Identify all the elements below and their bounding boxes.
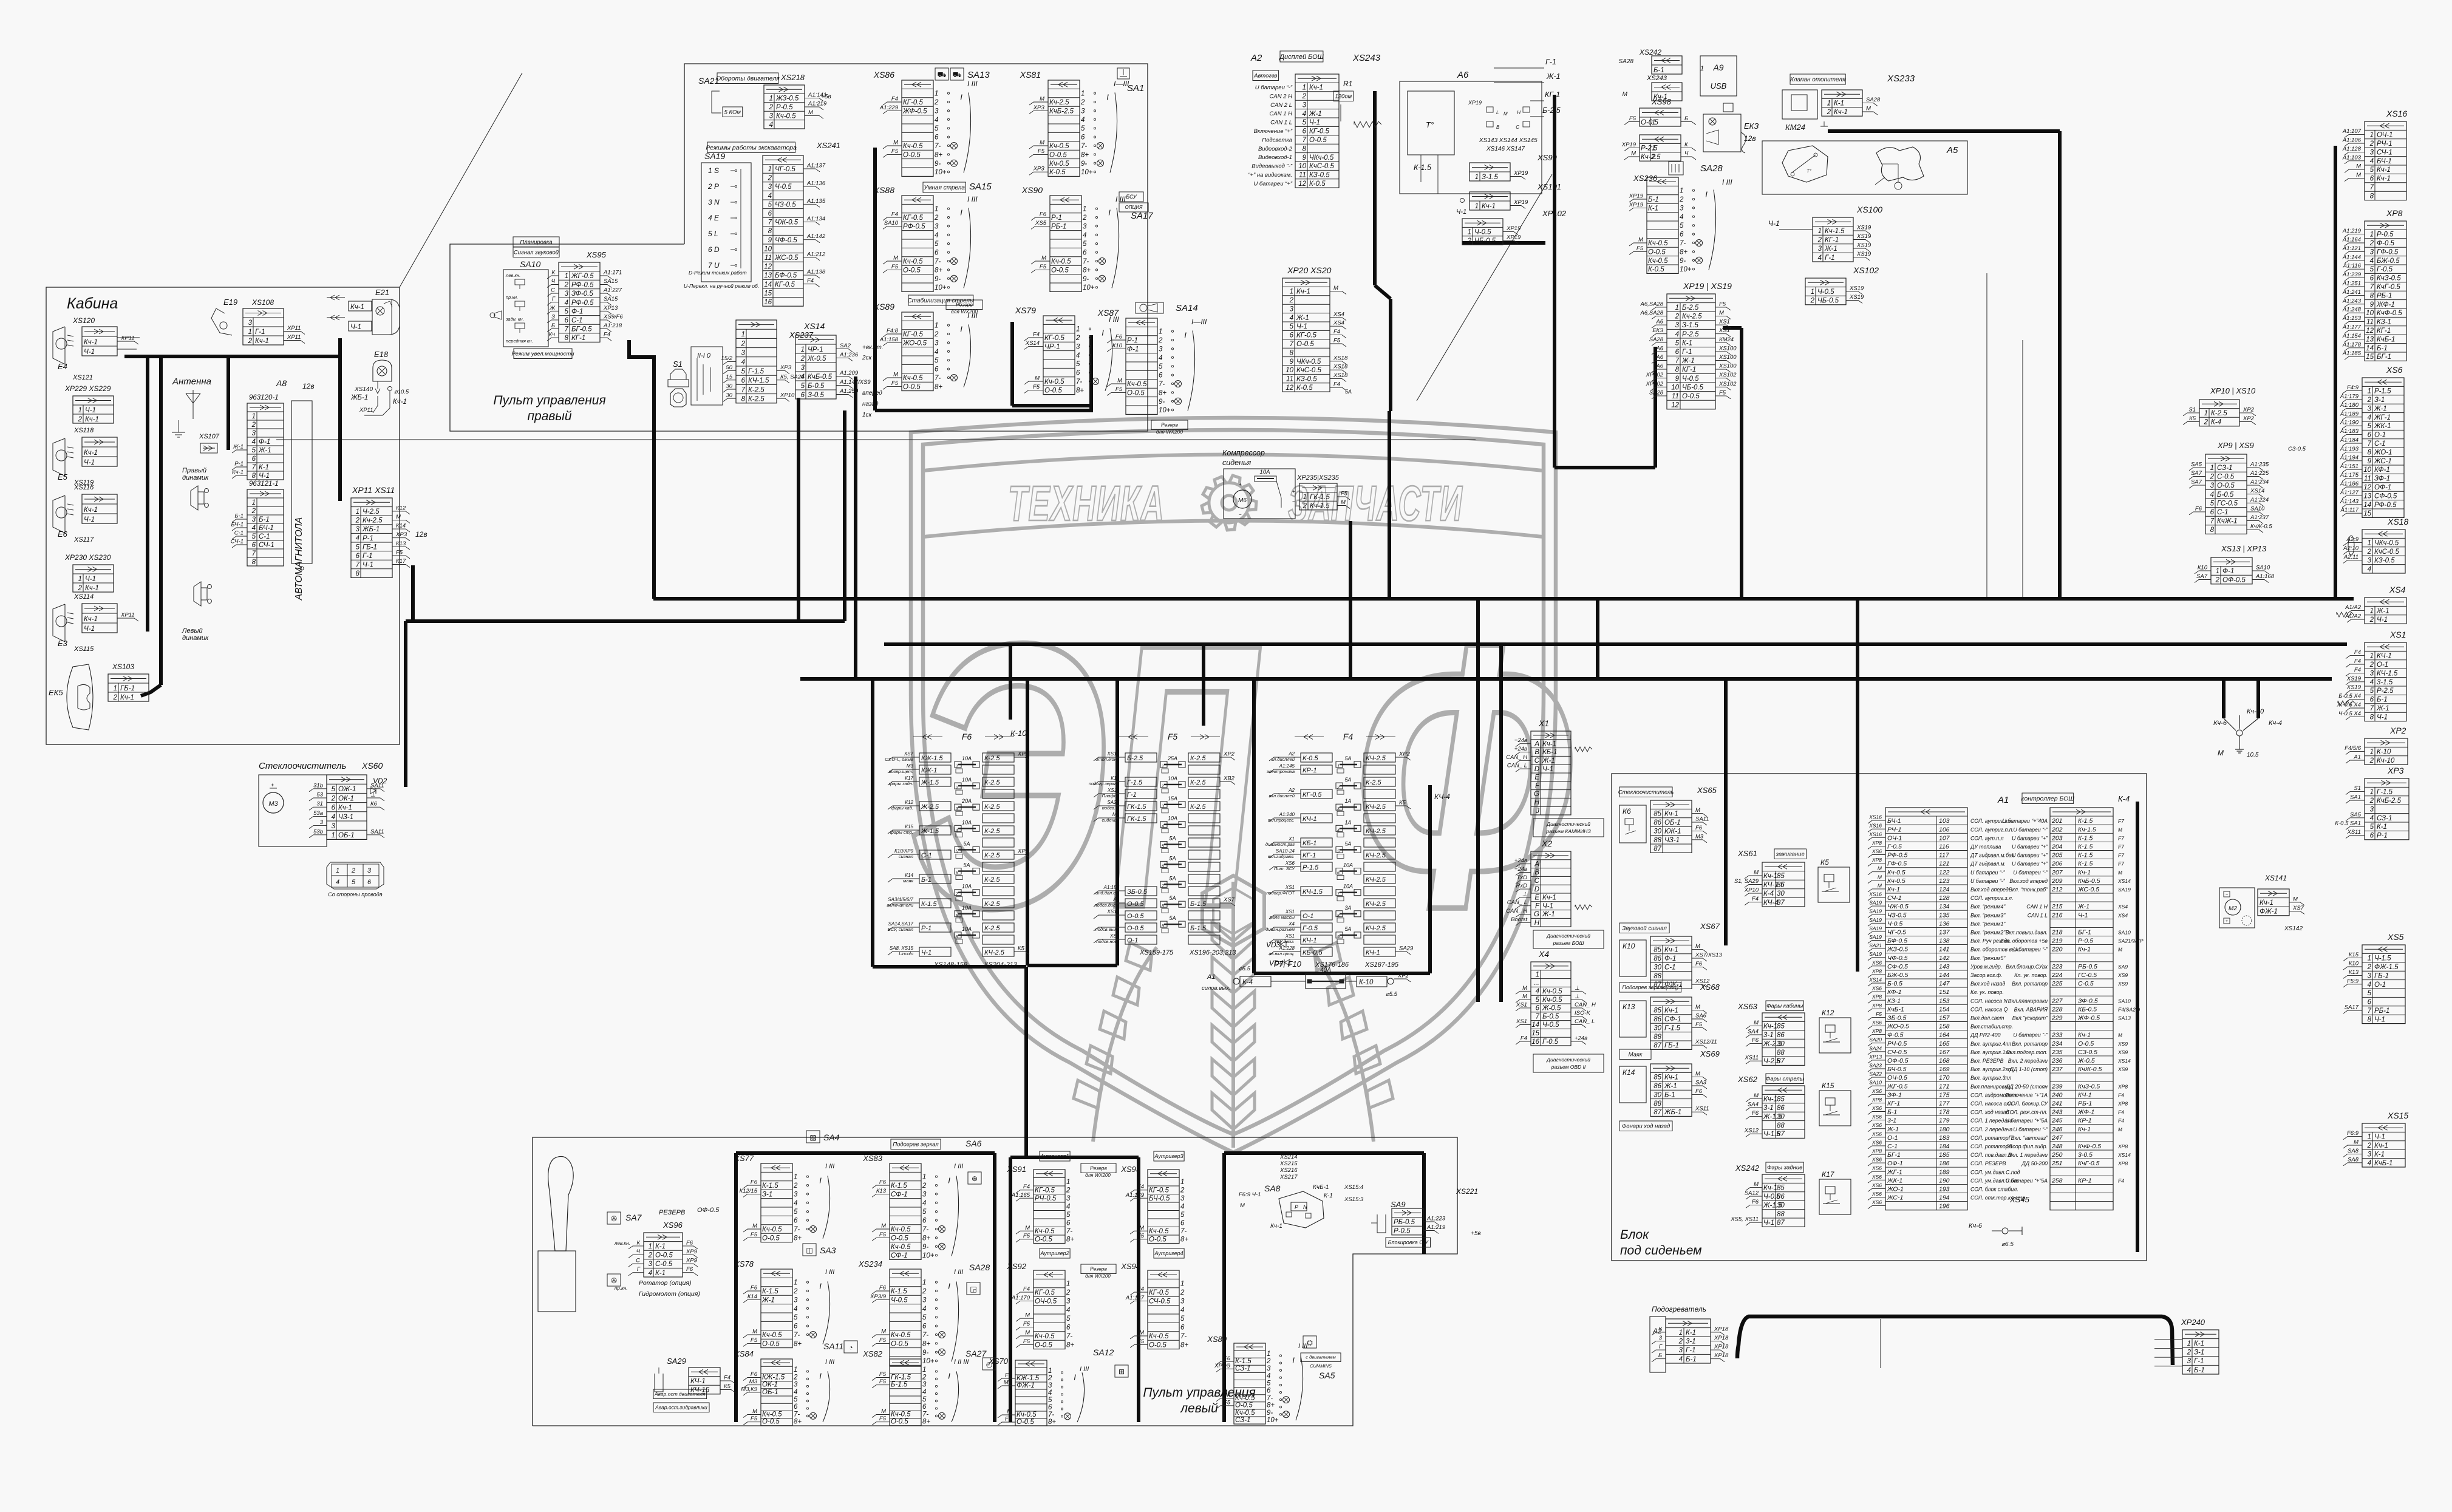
svg-text:6: 6 — [1536, 1005, 1540, 1012]
svg-text:О-0.5: О-0.5 — [891, 1234, 908, 1242]
svg-text:A: A — [1534, 740, 1539, 747]
svg-text:М: М — [1878, 865, 1882, 871]
svg-text:М6: М6 — [1112, 812, 1120, 817]
svg-text:XS18: XS18 — [2387, 517, 2408, 526]
svg-text:СФ-0.5: СФ-0.5 — [2374, 492, 2397, 500]
svg-text:XS6: XS6 — [1871, 1199, 1882, 1205]
svg-text:CAN_ H: CAN_ H — [1506, 754, 1527, 761]
svg-text:3: 3 — [2187, 1358, 2191, 1365]
svg-text:Б-1: Б-1 — [259, 516, 270, 523]
svg-text:ЗФ-0.5: ЗФ-0.5 — [2078, 997, 2098, 1004]
svg-text:5: 5 — [252, 533, 256, 540]
svg-text:Е5: Е5 — [58, 472, 68, 482]
svg-text:XS9: XS9 — [2117, 981, 2128, 987]
svg-text:О-0.5: О-0.5 — [903, 383, 921, 390]
svg-text:XS141: XS141 — [2264, 874, 2287, 882]
svg-text:КЧ-2.5: КЧ-2.5 — [1366, 876, 1386, 884]
svg-text:5А: 5А — [1344, 755, 1351, 761]
svg-text:КФ-1: КФ-1 — [1887, 989, 1902, 996]
svg-text:5А: 5А — [1344, 777, 1351, 783]
svg-text:Ж-1: Ж-1 — [1542, 757, 1555, 765]
svg-text:2: 2 — [768, 175, 772, 182]
svg-text:88: 88 — [1653, 837, 1661, 844]
svg-text:М: М — [1007, 1409, 1012, 1415]
svg-text:103: 103 — [1939, 817, 1950, 825]
svg-text:5: 5 — [252, 447, 256, 454]
svg-text:РЧ-1: РЧ-1 — [1887, 826, 1901, 833]
svg-text:ЧЗ-1: ЧЗ-1 — [338, 814, 353, 821]
svg-text:F6: F6 — [1695, 961, 1703, 967]
svg-text:XS14: XS14 — [1025, 340, 1040, 347]
svg-text:2: 2 — [2204, 419, 2209, 426]
svg-text:F4: F4 — [724, 1374, 730, 1381]
svg-text:Кч-1: Кч-1 — [1296, 288, 1310, 296]
svg-text:XS19: XS19 — [2346, 684, 2362, 691]
svg-text:Засор.воз.ф.: Засор.воз.ф. — [1970, 972, 2002, 978]
svg-text:КГ-1: КГ-1 — [1887, 1100, 1900, 1108]
svg-text:М: М — [1025, 1225, 1030, 1231]
svg-text:1: 1 — [1675, 304, 1679, 312]
svg-text:Кч-1: Кч-1 — [393, 398, 407, 406]
svg-text:1: 1 — [1081, 90, 1085, 98]
svg-text:Ф-1: Ф-1 — [1127, 346, 1139, 353]
svg-text:Правый: Правый — [182, 467, 206, 474]
svg-text:15: 15 — [1531, 1030, 1539, 1037]
svg-text:86: 86 — [1777, 1105, 1785, 1112]
svg-text:Аутригер1: Аутригер1 — [1040, 1153, 1069, 1159]
svg-text:4: 4 — [935, 349, 938, 356]
svg-text:SA11: SA11 — [370, 828, 384, 835]
svg-text:XS14: XS14 — [2117, 1058, 2131, 1064]
svg-text:Вкл. “режим3”: Вкл. “режим3” — [1970, 912, 2006, 918]
svg-text:К14: К14 — [1623, 1068, 1635, 1077]
svg-text:А1:157: А1:157 — [1103, 885, 1120, 890]
svg-text:248: 248 — [2051, 1143, 2063, 1150]
svg-text:ОЖ-1: ОЖ-1 — [338, 786, 356, 793]
svg-text:F6: F6 — [1752, 1199, 1759, 1205]
svg-text:153: 153 — [1939, 997, 1950, 1004]
svg-text:F5: F5 — [1137, 1338, 1145, 1345]
svg-text:Вкл.планировки: Вкл.планировки — [1970, 1083, 2010, 1089]
svg-text:RxD: RxD — [1516, 883, 1528, 890]
svg-text:СОЛ. аут.п.л: СОЛ. аут.п.л — [1970, 835, 2004, 841]
svg-text:2: 2 — [934, 331, 939, 338]
svg-text:О-1: О-1 — [1127, 937, 1138, 944]
svg-text:XS100: XS100 — [1718, 354, 1737, 361]
svg-text:XS214: XS214 — [1279, 1154, 1298, 1160]
svg-text:SA7: SA7 — [2191, 470, 2202, 477]
svg-text:лев.кн.: лев.кн. — [614, 1241, 630, 1246]
svg-text:ЗФ-1: ЗФ-1 — [1887, 1091, 1902, 1098]
svg-text:229: 229 — [2051, 1015, 2063, 1022]
svg-text:SA13: SA13 — [2118, 1015, 2131, 1021]
svg-text:КЖ-1.5: КЖ-1.5 — [762, 1374, 785, 1381]
svg-text:2: 2 — [934, 99, 939, 106]
svg-text:5: 5 — [1337, 850, 1340, 854]
svg-text:М: М — [2118, 1126, 2123, 1132]
svg-text:XS4: XS4 — [2389, 585, 2406, 594]
svg-text:ОПЦИЯ: ОПЦИЯ — [1125, 205, 1143, 210]
svg-text:1: 1 — [2368, 540, 2371, 547]
svg-text:К-10: К-10 — [1010, 729, 1027, 738]
svg-text:ГБ-1: ГБ-1 — [363, 543, 377, 551]
svg-text:178: 178 — [1939, 1109, 1950, 1116]
svg-text:134: 134 — [1939, 903, 1950, 910]
svg-text:I III: I III — [825, 1358, 834, 1366]
svg-text:2: 2 — [1158, 337, 1163, 344]
svg-text:10: 10 — [2363, 466, 2371, 474]
svg-text:Дисплей БОШ: Дисплей БОШ — [1278, 53, 1324, 61]
svg-text:ХР19: ХР19 — [1513, 199, 1528, 206]
svg-text:1: 1 — [922, 1279, 926, 1287]
svg-text:8: 8 — [741, 396, 746, 403]
svg-text:6: 6 — [922, 1217, 927, 1225]
svg-text:5: 5 — [801, 383, 805, 390]
svg-text:А1:168: А1:168 — [2255, 573, 2275, 580]
svg-text:Кч-1: Кч-1 — [1664, 1007, 1678, 1015]
svg-text:5: 5 — [565, 308, 569, 315]
svg-text:1: 1 — [1652, 145, 1655, 152]
svg-text:ЖФ-0.5: ЖФ-0.5 — [902, 107, 927, 115]
svg-text:2: 2 — [331, 795, 336, 802]
svg-text:М: М — [893, 140, 898, 146]
svg-text:Т°: Т° — [1807, 168, 1812, 174]
svg-text:ЖК-1: ЖК-1 — [2374, 423, 2391, 430]
svg-text:Умная стрела: Умная стрела — [923, 185, 965, 191]
svg-text:1: 1 — [2204, 410, 2208, 417]
svg-text:1: 1 — [1066, 1179, 1070, 1186]
svg-text:3: 3 — [1066, 1298, 1071, 1305]
svg-text:А1:243: А1:243 — [2342, 298, 2362, 304]
svg-text:3: 3 — [2368, 557, 2372, 564]
svg-text:1: 1 — [1475, 174, 1479, 181]
svg-text:11: 11 — [1672, 393, 1679, 400]
svg-text:5: 5 — [1076, 361, 1080, 368]
svg-text:КР-1: КР-1 — [1303, 767, 1317, 774]
svg-text:4: 4 — [356, 535, 359, 542]
svg-text:F7: F7 — [2118, 861, 2124, 867]
svg-text:143: 143 — [1939, 963, 1950, 970]
svg-text:М: М — [1139, 1330, 1144, 1337]
svg-text:1: 1 — [1700, 65, 1704, 72]
svg-text:SA14,SA17: SA14,SA17 — [888, 921, 914, 927]
svg-text:3: 3 — [1162, 805, 1164, 809]
svg-text:КГ-0.5: КГ-0.5 — [1309, 128, 1329, 135]
svg-text:8+: 8+ — [1076, 387, 1084, 394]
svg-text:М: М — [2118, 947, 2123, 953]
svg-text:XS91: XS91 — [1006, 1165, 1026, 1174]
svg-text:XS9: XS9 — [2117, 1066, 2128, 1072]
svg-text:2ск: 2ск — [862, 355, 873, 361]
svg-text:Засор.фил.гидр.: Засор.фил.гидр. — [2006, 1143, 2048, 1149]
svg-text:К-4: К-4 — [1763, 890, 1774, 897]
svg-text:1: 1 — [2370, 789, 2374, 796]
svg-text:3: 3 — [2368, 972, 2372, 979]
svg-text:XS63: XS63 — [1737, 1002, 1758, 1011]
svg-text:КчЖ-0.5: КчЖ-0.5 — [2250, 523, 2272, 530]
svg-text:XS61: XS61 — [1737, 849, 1757, 858]
svg-text:SA29: SA29 — [1399, 945, 1414, 952]
svg-text:ЖО-1: ЖО-1 — [2374, 449, 2392, 456]
svg-text:К-2.5: К-2.5 — [1190, 803, 1206, 811]
svg-text:Вкл. ротатор: Вкл. ротатор — [2012, 981, 2048, 987]
svg-text:СЗ-1: СЗ-1 — [2217, 465, 2232, 472]
svg-text:2: 2 — [793, 1374, 798, 1381]
svg-text:1: 1 — [649, 1243, 652, 1250]
svg-text:К13: К13 — [396, 540, 406, 547]
svg-text:КЖ-1: КЖ-1 — [1664, 828, 1681, 835]
svg-text:3: 3 — [1066, 1195, 1071, 1202]
svg-text:227: 227 — [2051, 997, 2063, 1004]
svg-text:XS6: XS6 — [1871, 986, 1882, 992]
svg-text:88: 88 — [1777, 1211, 1785, 1218]
svg-text:Блокировка С/У: Блокировка С/У — [1388, 1239, 1429, 1245]
svg-text:XS14: XS14 — [2117, 878, 2131, 884]
svg-text:8+: 8+ — [1180, 1236, 1188, 1243]
svg-text:КГ-0.5: КГ-0.5 — [775, 281, 795, 288]
svg-text:Кч-0.5: Кч-0.5 — [1648, 257, 1668, 265]
svg-text:К-1.5: К-1.5 — [762, 1288, 778, 1295]
svg-text:Вкл. аутриг.4пп: Вкл. аутриг.4пп — [1970, 1041, 2011, 1047]
svg-text:Р-0.5: Р-0.5 — [776, 104, 793, 111]
svg-text:КЧ-1: КЧ-1 — [1303, 816, 1317, 823]
svg-text:8: 8 — [1290, 349, 1294, 356]
svg-text:SA3/4/5/6/7: SA3/4/5/6/7 — [888, 897, 913, 902]
svg-text:3: 3 — [332, 823, 336, 830]
svg-text:F5: F5 — [1023, 1233, 1030, 1239]
svg-text:С-0.5: С-0.5 — [2217, 474, 2235, 481]
svg-text:Кч-0.5: Кч-0.5 — [903, 375, 923, 382]
svg-text:5А: 5А — [1169, 836, 1176, 842]
svg-text:XS96: XS96 — [662, 1221, 683, 1230]
svg-text:К6: К6 — [370, 801, 378, 808]
svg-text:КчС-0.5: КчС-0.5 — [1309, 163, 1334, 170]
svg-text:SA21/9/ХР: SA21/9/ХР — [2118, 938, 2144, 944]
svg-text:SA19: SA19 — [1869, 908, 1882, 914]
svg-text:175: 175 — [1939, 1091, 1950, 1098]
svg-text:6: 6 — [356, 553, 360, 560]
svg-text:ХР3/9: ХР3/9 — [870, 1293, 887, 1300]
svg-text:ХР9: ХР9 — [686, 1248, 698, 1255]
svg-text:СФ-0.5: СФ-0.5 — [1887, 963, 1908, 970]
svg-text:4: 4 — [794, 1306, 797, 1313]
svg-text:B: B — [1534, 749, 1539, 756]
svg-text:Кч-1: Кч-1 — [1542, 894, 1556, 902]
svg-text:12: 12 — [1286, 384, 1293, 392]
svg-text:А1:179: А1:179 — [2340, 393, 2359, 400]
svg-text:3: 3 — [2370, 248, 2374, 256]
svg-text:7-: 7- — [1083, 258, 1089, 265]
svg-text:К17: К17 — [905, 775, 913, 781]
svg-text:КР-1: КР-1 — [2078, 1117, 2092, 1125]
svg-text:5: 5 — [922, 1208, 927, 1216]
svg-text:⊥: ⊥ — [1575, 985, 1579, 992]
svg-text:F5: F5 — [1224, 1399, 1231, 1406]
svg-text:О-1: О-1 — [2374, 432, 2386, 439]
svg-text:I: I — [819, 1281, 822, 1290]
svg-text:ISO-K: ISO-K — [1575, 1010, 1591, 1017]
svg-text:4: 4 — [1536, 988, 1539, 995]
svg-text:CAN_ H: CAN_ H — [1506, 908, 1527, 914]
svg-text:5: 5 — [1180, 1315, 1185, 1323]
svg-text:XS5: XS5 — [1035, 220, 1047, 226]
svg-text:XS68: XS68 — [1700, 982, 1720, 992]
svg-text:Кл. ук. повор.: Кл. ук. повор. — [1970, 989, 2004, 995]
svg-text:4: 4 — [332, 814, 335, 821]
svg-text:F5: F5 — [751, 1415, 758, 1422]
svg-text:К13: К13 — [876, 1188, 887, 1194]
svg-text:Кч-10: Кч-10 — [2247, 708, 2264, 715]
svg-text:⊥: ⊥ — [1522, 891, 1527, 897]
svg-text:4: 4 — [252, 525, 256, 532]
svg-text:I III: I III — [1115, 195, 1126, 203]
svg-text:К14: К14 — [396, 523, 406, 530]
svg-text:6: 6 — [1675, 349, 1680, 356]
svg-text:ЧКч-0.5: ЧКч-0.5 — [1309, 154, 1334, 162]
svg-text:XS5: XS5 — [2387, 932, 2404, 942]
svg-text:Г-1: Г-1 — [1682, 349, 1692, 356]
svg-text:XS103: XS103 — [112, 662, 134, 671]
svg-text:К-1: К-1 — [1648, 205, 1658, 212]
svg-text:левый: левый — [1180, 1401, 1218, 1415]
svg-text:А1:219: А1:219 — [1426, 1224, 1446, 1231]
svg-text:СЗ-1: СЗ-1 — [2377, 815, 2392, 822]
svg-text:Кч-0.5: Кч-0.5 — [762, 1226, 782, 1233]
svg-text:SA10: SA10 — [520, 259, 540, 269]
svg-text:2: 2 — [1651, 154, 1656, 161]
svg-text:3: 3 — [2370, 670, 2374, 677]
svg-text:5: 5 — [1536, 996, 1540, 1004]
svg-text:КГ-1: КГ-1 — [1825, 237, 1839, 244]
svg-text:К-1.5: К-1.5 — [2078, 843, 2093, 851]
svg-text:XS1: XS1 — [1516, 1001, 1527, 1008]
svg-text:202: 202 — [2051, 826, 2063, 833]
svg-text:ЖС-1: ЖС-1 — [1887, 1194, 1903, 1202]
svg-text:30: 30 — [1777, 1040, 1785, 1047]
svg-text:Ч-1: Ч-1 — [259, 472, 270, 480]
svg-text:D: D — [1534, 766, 1539, 773]
svg-text:ОБ-1: ОБ-1 — [762, 1389, 778, 1396]
svg-text:С: С — [636, 1258, 640, 1264]
svg-text:К-0.5 SA1: К-0.5 SA1 — [2335, 820, 2361, 827]
svg-text:5: 5 — [1675, 339, 1680, 347]
svg-text:7-: 7- — [935, 375, 941, 382]
svg-text:ХР2: ХР2 — [2389, 726, 2406, 735]
svg-text:ХР18: ХР18 — [1714, 1344, 1729, 1350]
svg-text:8+: 8+ — [1048, 1418, 1056, 1426]
svg-text:О-1: О-1 — [1887, 1134, 1898, 1142]
svg-text:ХР8: ХР8 — [1871, 840, 1882, 846]
svg-text:Ж-1.5: Ж-1.5 — [921, 828, 939, 835]
svg-text:3: 3 — [252, 430, 256, 437]
svg-text:F4: F4 — [2118, 1092, 2124, 1098]
svg-text:Фары задние: Фары задние — [1767, 1165, 1802, 1171]
svg-text:1: 1 — [1303, 84, 1306, 92]
svg-text:I: I — [1184, 330, 1187, 339]
svg-text:5: 5 — [1162, 845, 1164, 849]
svg-text:1: 1 — [1811, 288, 1814, 296]
svg-text:40А: 40А — [1320, 967, 1331, 973]
svg-text:136: 136 — [1939, 920, 1950, 927]
svg-text:7: 7 — [1303, 137, 1307, 144]
svg-text:U батареи “-”: U батареи “-” — [1970, 878, 2006, 884]
svg-text:БСУ: БСУ — [1126, 194, 1137, 200]
svg-text:СЗ-0.5: СЗ-0.5 — [2078, 1049, 2097, 1056]
svg-text:БЧ-0.5: БЧ-0.5 — [1149, 1195, 1170, 1202]
svg-text:241: 241 — [2051, 1100, 2063, 1108]
svg-text:РФ-0.5: РФ-0.5 — [2374, 502, 2397, 509]
svg-text:206: 206 — [2051, 860, 2063, 868]
svg-text:А1:219: А1:219 — [808, 101, 827, 107]
svg-text:6: 6 — [2368, 999, 2372, 1006]
svg-text:БЧ-1: БЧ-1 — [2377, 158, 2392, 165]
svg-text:М: М — [1504, 111, 1508, 117]
svg-text:9-: 9- — [935, 276, 941, 283]
svg-text:U батареи “+”: U батареи “+” — [2012, 861, 2048, 867]
svg-text:СЗ-1: СЗ-1 — [1235, 1365, 1250, 1372]
svg-text:85: 85 — [1653, 947, 1661, 954]
svg-text:М: М — [881, 1329, 886, 1335]
svg-text:Кч-1: Кч-1 — [84, 339, 98, 346]
svg-text:ХР2: ХР2 — [1017, 848, 1029, 855]
svg-text:SA21: SA21 — [698, 76, 719, 86]
svg-text:Р-1: Р-1 — [2377, 833, 2388, 840]
svg-text:ЖО-0.5: ЖО-0.5 — [902, 339, 927, 347]
svg-text:ОБ-1: ОБ-1 — [1664, 819, 1681, 826]
svg-text:А1:144: А1:144 — [2342, 254, 2361, 261]
svg-text:ХР10: ХР10 — [1744, 887, 1759, 894]
svg-text:2: 2 — [1467, 237, 1472, 245]
svg-text:Г-1.5: Г-1.5 — [2377, 789, 2393, 796]
svg-text:Кч-0.5: Кч-0.5 — [762, 1411, 782, 1418]
svg-text:6: 6 — [801, 392, 805, 399]
svg-text:2: 2 — [1678, 1338, 1683, 1346]
svg-text:ГБ-1: ГБ-1 — [120, 685, 135, 692]
svg-text:120ом: 120ом — [1335, 94, 1352, 100]
svg-text:I: I — [819, 1176, 822, 1185]
svg-text:ГК-1.5: ГК-1.5 — [1310, 494, 1330, 501]
svg-text:XS19: XS19 — [1106, 751, 1119, 757]
svg-text:10+: 10+ — [1267, 1417, 1279, 1424]
svg-text:СЗ-1: СЗ-1 — [1235, 1417, 1250, 1424]
svg-text:XS102: XS102 — [1718, 372, 1737, 378]
svg-text:F5: F5 — [1005, 1416, 1012, 1423]
svg-text:КЧ-1: КЧ-1 — [2377, 653, 2392, 660]
svg-text:10: 10 — [764, 245, 772, 253]
svg-text:ХР3/9: ХР3/9 — [1214, 1363, 1231, 1369]
svg-text:85: 85 — [1777, 1096, 1785, 1103]
svg-text:О-0.5: О-0.5 — [1682, 393, 1700, 400]
svg-text:3: 3 — [922, 1191, 927, 1198]
svg-text:ХР19 | XS19: ХР19 | XS19 — [1683, 281, 1732, 291]
svg-text:10.5: 10.5 — [2247, 752, 2259, 758]
svg-text:4: 4 — [1303, 111, 1306, 118]
svg-text:А1:224: А1:224 — [2250, 497, 2269, 503]
svg-text:2: 2 — [1066, 1187, 1071, 1194]
svg-text:Ч-1: Ч-1 — [1542, 902, 1553, 910]
svg-text:SA8: SA8 — [1264, 1183, 1281, 1193]
svg-text:9-: 9- — [935, 160, 941, 168]
svg-text:Кч-1: Кч-1 — [1763, 873, 1777, 880]
svg-text:М: М — [1117, 378, 1122, 384]
svg-text:963120-1: 963120-1 — [249, 394, 279, 401]
svg-text:+: + — [1239, 482, 1242, 487]
svg-text:М3: М3 — [1695, 833, 1704, 840]
svg-text:11: 11 — [765, 254, 772, 262]
svg-text:SA8, XS15: SA8, XS15 — [890, 945, 914, 951]
svg-text:Г-1.5: Г-1.5 — [1664, 1024, 1681, 1032]
svg-text:А1:167: А1:167 — [1125, 1295, 1145, 1301]
